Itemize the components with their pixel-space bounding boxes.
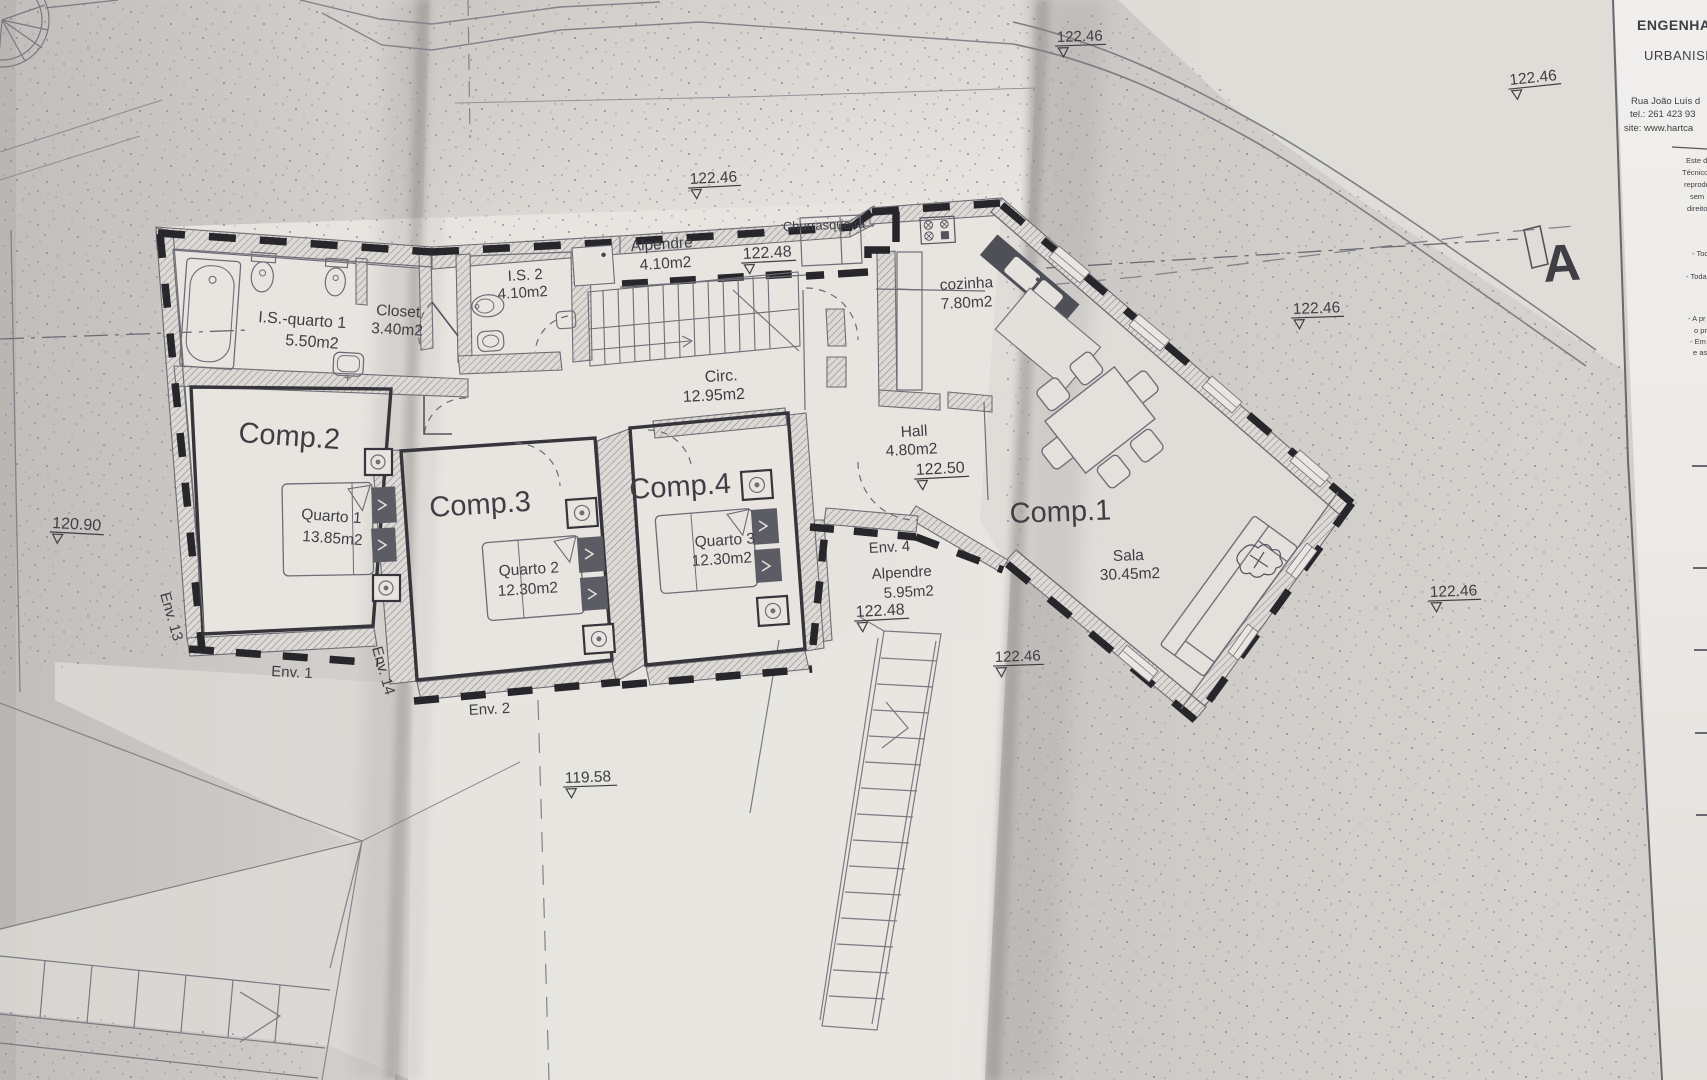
svg-text:Comp.3: Comp.3: [428, 486, 531, 524]
svg-text:122.46: 122.46: [1293, 299, 1341, 318]
svg-text:Hall: Hall: [900, 423, 928, 441]
svg-text:Alpendre: Alpendre: [871, 563, 932, 583]
svg-text:direito: direito: [1687, 204, 1707, 213]
svg-text:5.95m2: 5.95m2: [883, 582, 934, 602]
svg-text:Churrasqueira: Churrasqueira: [783, 216, 867, 234]
svg-text:site: www.hartca: site: www.hartca: [1624, 123, 1694, 134]
svg-text:Sala: Sala: [1113, 547, 1145, 565]
svg-text:12.95m2: 12.95m2: [682, 386, 745, 406]
svg-text:o pr: o pr: [1694, 326, 1707, 335]
svg-text:Este d: Este d: [1686, 156, 1707, 165]
svg-text:- Toda: - Toda: [1686, 272, 1707, 281]
svg-text:122.48: 122.48: [855, 601, 905, 621]
svg-text:Env. 4: Env. 4: [868, 538, 910, 557]
svg-text:Rua João Luís d: Rua João Luís d: [1631, 96, 1700, 107]
svg-text:Env. 1: Env. 1: [271, 663, 313, 682]
svg-text:reprodu: reprodu: [1684, 180, 1707, 189]
svg-text:Comp.4: Comp.4: [628, 468, 731, 506]
svg-text:122.46: 122.46: [1430, 582, 1478, 601]
svg-text:- A pr: - A pr: [1688, 314, 1706, 323]
svg-text:Comp.1: Comp.1: [1009, 494, 1112, 530]
svg-text:3.40m2: 3.40m2: [371, 320, 424, 340]
svg-text:sem: sem: [1690, 192, 1704, 201]
svg-text:120.90: 120.90: [52, 515, 102, 535]
svg-text:cozinha: cozinha: [939, 274, 994, 294]
svg-text:- Tod: - Tod: [1692, 249, 1707, 258]
svg-text:4.80m2: 4.80m2: [885, 440, 938, 460]
svg-text:4.10m2: 4.10m2: [639, 254, 692, 274]
svg-text:122.46: 122.46: [995, 647, 1041, 666]
svg-text:119.58: 119.58: [565, 768, 612, 787]
svg-text:4.10m2: 4.10m2: [497, 283, 548, 303]
svg-text:122.50: 122.50: [915, 459, 965, 479]
svg-text:URBANISMO: URBANISMO: [1644, 48, 1707, 63]
svg-text:122.46: 122.46: [1057, 27, 1103, 46]
svg-text:e as: e as: [1693, 348, 1707, 357]
svg-text:122.48: 122.48: [742, 243, 792, 263]
svg-text:7.80m2: 7.80m2: [940, 293, 993, 313]
svg-text:I.S. 2: I.S. 2: [507, 266, 543, 285]
svg-text:ENGENHARIA: ENGENHARIA: [1637, 17, 1707, 33]
svg-text:30.45m2: 30.45m2: [1100, 565, 1161, 584]
svg-text:122.46: 122.46: [689, 169, 737, 188]
svg-text:- Em: - Em: [1690, 337, 1706, 346]
svg-text:Técnico: Técnico: [1682, 168, 1707, 177]
svg-text:A: A: [1541, 233, 1583, 293]
svg-text:Circ.: Circ.: [704, 367, 738, 386]
svg-text:Closet: Closet: [376, 302, 421, 321]
svg-text:Env. 2: Env. 2: [468, 700, 510, 719]
svg-text:tel.: 261 423 93: tel.: 261 423 93: [1630, 109, 1696, 120]
